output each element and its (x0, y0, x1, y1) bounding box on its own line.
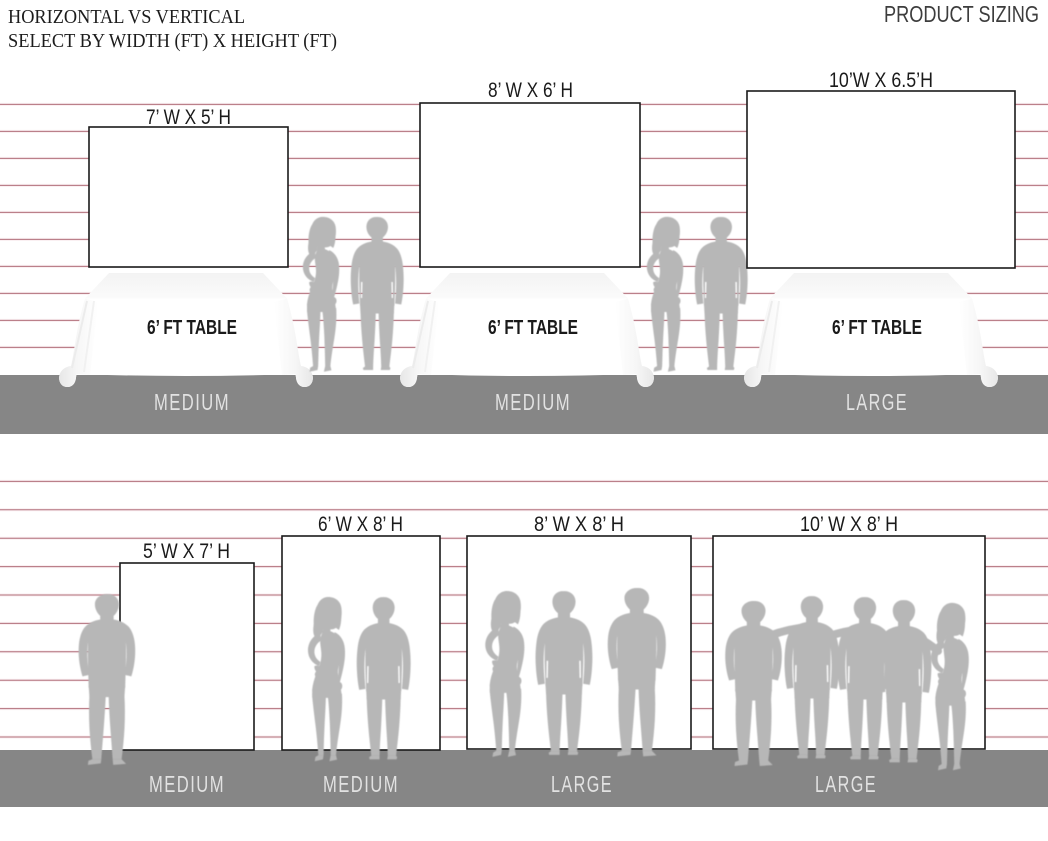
svg-text:PRODUCT SIZING: PRODUCT SIZING (884, 1, 1039, 27)
svg-text:LARGE: LARGE (551, 771, 613, 797)
svg-text:7’ W X 5’ H: 7’ W X 5’ H (146, 106, 231, 129)
svg-text:LARGE: LARGE (846, 389, 908, 415)
svg-text:5’ W X 7’ H: 5’ W X 7’ H (143, 540, 230, 563)
svg-text:10’ W X 8’ H: 10’ W X 8’ H (800, 513, 898, 536)
svg-text:8’ W X 6’ H: 8’ W X 6’ H (488, 79, 573, 102)
svg-text:6’ W X 8’ H: 6’ W X 8’ H (318, 513, 403, 536)
svg-text:SELECT BY WIDTH (FT) X HEIGHT: SELECT BY WIDTH (FT) X HEIGHT (FT) (8, 30, 337, 52)
svg-text:HORIZONTAL VS VERTICAL: HORIZONTAL VS VERTICAL (8, 6, 245, 28)
svg-text:8’ W X 8’ H: 8’ W X 8’ H (534, 513, 624, 536)
svg-text:MEDIUM: MEDIUM (154, 389, 230, 415)
svg-text:MEDIUM: MEDIUM (323, 771, 399, 797)
svg-text:MEDIUM: MEDIUM (149, 771, 225, 797)
svg-text:LARGE: LARGE (815, 771, 877, 797)
svg-text:MEDIUM: MEDIUM (495, 389, 571, 415)
svg-text:10’W X 6.5’H: 10’W X 6.5’H (829, 69, 933, 92)
